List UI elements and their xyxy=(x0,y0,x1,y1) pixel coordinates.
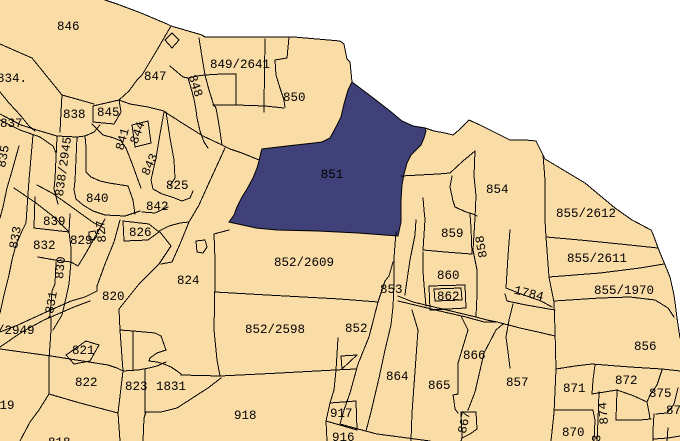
svg-text:840: 840 xyxy=(86,192,109,206)
svg-text:864: 864 xyxy=(386,370,409,384)
svg-text:850: 850 xyxy=(283,91,306,105)
svg-text:845: 845 xyxy=(97,106,120,120)
svg-text:874: 874 xyxy=(596,401,612,425)
svg-text:819: 819 xyxy=(0,399,15,413)
svg-text:830: 830 xyxy=(53,256,69,280)
svg-text:824: 824 xyxy=(177,274,200,288)
svg-text:847: 847 xyxy=(144,70,167,84)
svg-text:917: 917 xyxy=(330,407,353,421)
svg-text:875: 875 xyxy=(649,387,672,401)
svg-text:827: 827 xyxy=(94,219,110,243)
svg-text:837: 837 xyxy=(0,117,23,131)
svg-text:856: 856 xyxy=(634,340,657,354)
svg-text:860: 860 xyxy=(437,269,460,283)
svg-text:/2949: /2949 xyxy=(0,324,35,338)
svg-text:873: 873 xyxy=(590,434,605,441)
svg-text:852/2598: 852/2598 xyxy=(245,323,305,337)
svg-text:854: 854 xyxy=(486,183,509,197)
svg-text:821: 821 xyxy=(72,344,95,358)
svg-text:846: 846 xyxy=(57,20,80,34)
svg-text:852: 852 xyxy=(345,322,368,336)
svg-text:859: 859 xyxy=(441,227,464,241)
svg-text:918: 918 xyxy=(234,409,257,423)
svg-text:852/2609: 852/2609 xyxy=(274,256,334,270)
svg-text:916: 916 xyxy=(332,431,355,441)
svg-text:825: 825 xyxy=(166,179,189,193)
svg-text:855/2611: 855/2611 xyxy=(567,252,627,266)
svg-text:871: 871 xyxy=(563,382,586,396)
svg-text:838: 838 xyxy=(63,108,86,122)
svg-text:872: 872 xyxy=(615,374,638,388)
svg-text:862: 862 xyxy=(437,290,460,304)
svg-text:865: 865 xyxy=(428,379,451,393)
svg-text:853: 853 xyxy=(380,283,403,297)
svg-text:822: 822 xyxy=(75,376,98,390)
svg-text:818: 818 xyxy=(48,436,71,441)
svg-text:855/2612: 855/2612 xyxy=(556,207,616,221)
svg-text:826: 826 xyxy=(129,226,152,240)
svg-text:866: 866 xyxy=(463,349,486,363)
svg-text:849/2641: 849/2641 xyxy=(210,58,270,72)
svg-text:829: 829 xyxy=(70,234,93,248)
svg-text:839: 839 xyxy=(43,215,66,229)
svg-text:820: 820 xyxy=(102,290,125,304)
svg-text:873: 873 xyxy=(666,404,680,418)
svg-text:823: 823 xyxy=(125,380,148,394)
svg-text:832: 832 xyxy=(33,239,56,253)
svg-text:855/1970: 855/1970 xyxy=(594,284,654,298)
svg-text:834.: 834. xyxy=(0,72,27,86)
svg-text:851: 851 xyxy=(321,168,344,182)
svg-text:857: 857 xyxy=(506,376,529,390)
svg-text:870: 870 xyxy=(562,426,585,440)
svg-text:842: 842 xyxy=(146,200,169,214)
svg-text:1831: 1831 xyxy=(156,380,186,394)
